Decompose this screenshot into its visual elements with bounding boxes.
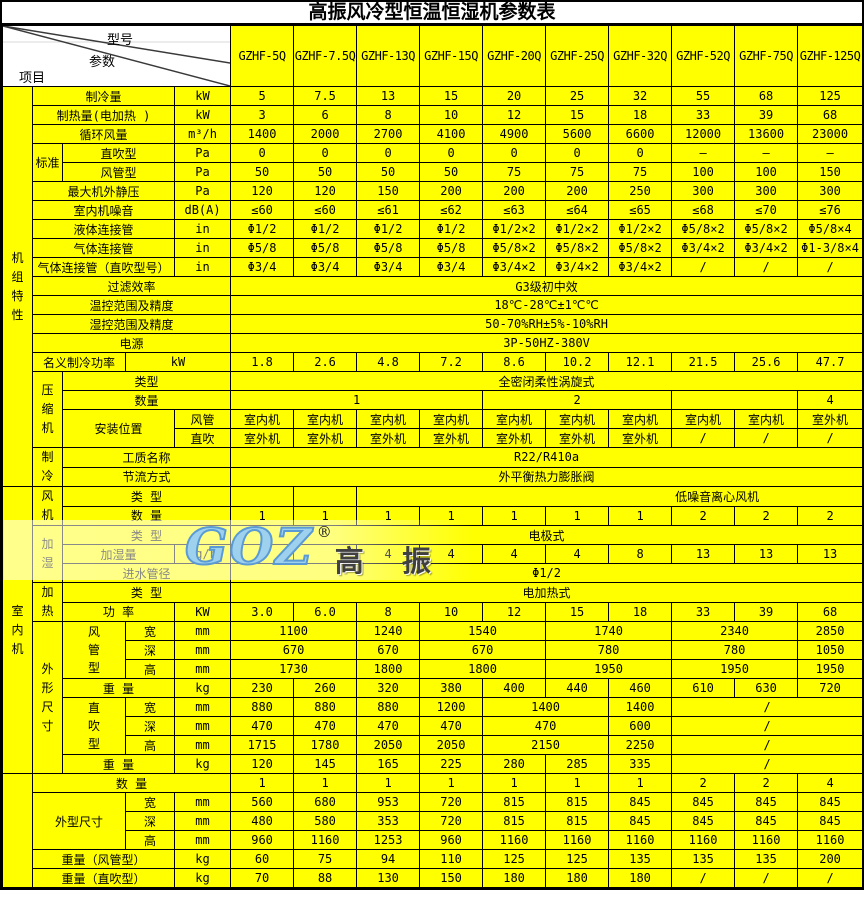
table-row: 气体连接管（直吹型号）inΦ3/4Φ3/4Φ3/4Φ3/4Φ3/4×2Φ3/4×… (3, 258, 863, 277)
unit-label: mm (175, 622, 231, 641)
value-cell: 8.6 (483, 353, 546, 372)
table-row: 加湿量kg/h344448131313 (3, 545, 863, 564)
value-cell: Φ3/4 (231, 258, 294, 277)
value-cell: 13600 (735, 125, 798, 144)
row-label: 温控范围及精度 (33, 296, 231, 315)
value-cell: ≤62 (420, 201, 483, 220)
value-cell: 外平衡热力膨胀阀 (231, 467, 863, 487)
value-cell: 低噪音离心风机 (357, 487, 863, 507)
value-cell: 25 (546, 87, 609, 106)
value-cell: 1 (483, 774, 546, 793)
unit-label: mm (175, 736, 231, 755)
value-cell: 75 (609, 163, 672, 182)
row-label: 直吹型 (63, 698, 126, 755)
value-cell: Φ5/8×2 (672, 220, 735, 239)
value-cell: 880 (357, 698, 420, 717)
value-cell: 2.6 (294, 353, 357, 372)
value-cell: 1780 (294, 736, 357, 755)
value-cell: – (672, 144, 735, 163)
table-row: 压缩机类型全密闭柔性涡旋式 (3, 372, 863, 391)
model-header: GZHF-20Q (483, 26, 546, 87)
spec-sheet: 高振风冷型恒温恒湿机参数表 型号 参数 项目 GZHF-5Q (0, 0, 864, 890)
section-label-indoor-unit: 室内机 (3, 487, 33, 774)
value-cell: / (798, 429, 863, 448)
model-header: GZHF-15Q (420, 26, 483, 87)
table-row: 数量124 (3, 391, 863, 410)
value-cell: 4.8 (357, 353, 420, 372)
value-cell: 845 (735, 812, 798, 831)
value-cell: 6.0 (294, 602, 357, 622)
value-cell: 10 (420, 602, 483, 622)
table-row: 高mm9601160125396011601160116011601160116… (3, 831, 863, 850)
value-cell: 353 (357, 812, 420, 831)
value-cell: 4 (420, 545, 483, 564)
row-label: 过滤效率 (33, 277, 231, 296)
value-cell: 室内机 (735, 410, 798, 429)
value-cell: Φ1/2 (357, 220, 420, 239)
value-cell: 230 (231, 679, 294, 698)
value-cell: 55 (672, 87, 735, 106)
value-cell: 180 (546, 869, 609, 888)
unit-label: dB(A) (175, 201, 231, 220)
value-cell: 3P-50HZ-380V (231, 334, 863, 353)
value-cell: 225 (420, 755, 483, 774)
value-cell: 720 (798, 679, 863, 698)
value-cell: 200 (420, 182, 483, 201)
unit-label: kg (175, 850, 231, 869)
unit-label: mm (175, 660, 231, 679)
row-label: 高 (126, 831, 175, 850)
value-cell: 100 (735, 163, 798, 182)
value-cell: 150 (357, 182, 420, 201)
value-cell: 100 (672, 163, 735, 182)
value-cell: 135 (609, 850, 672, 869)
value-cell: 300 (672, 182, 735, 201)
value-cell: 670 (420, 641, 546, 660)
value-cell: Φ1/2×2 (609, 220, 672, 239)
unit-label: mm (175, 717, 231, 736)
value-cell: 670 (357, 641, 420, 660)
value-cell: 880 (294, 698, 357, 717)
value-cell: 50 (357, 163, 420, 182)
row-label: 室内机噪音 (33, 201, 175, 220)
unit-label: 风管 (175, 410, 231, 429)
value-cell: 4 (357, 545, 420, 564)
row-label: 气体连接管 (33, 239, 175, 258)
value-cell: / (672, 717, 863, 736)
value-cell: 室外机 (483, 429, 546, 448)
value-cell: 7.2 (420, 353, 483, 372)
unit-label: mm (175, 793, 231, 812)
value-cell: Φ3/4×2 (672, 239, 735, 258)
value-cell: 280 (483, 755, 546, 774)
value-cell: 50 (294, 163, 357, 182)
value-cell: 1200 (420, 698, 483, 717)
value-cell: 1.8 (231, 353, 294, 372)
value-cell: 815 (483, 793, 546, 812)
row-label: 直吹型 (63, 144, 175, 163)
value-cell: 88 (294, 869, 357, 888)
value-cell: 1400 (609, 698, 672, 717)
row-label: 类 型 (63, 526, 231, 545)
value-cell: Φ3/4×2 (483, 258, 546, 277)
row-label: 深 (126, 717, 175, 736)
value-cell: 7.5 (294, 87, 357, 106)
table-row: 功 率KW3.06.0810121518333968 (3, 602, 863, 622)
value-cell: 1950 (546, 660, 672, 679)
value-cell: 50 (420, 163, 483, 182)
value-cell: 47.7 (798, 353, 863, 372)
unit-label: kg (175, 755, 231, 774)
unit-label: kW (175, 106, 231, 125)
value-cell: 120 (294, 182, 357, 201)
value-cell: 135 (672, 850, 735, 869)
value-cell: 150 (798, 163, 863, 182)
value-cell: 110 (420, 850, 483, 869)
value-cell: 室内机 (483, 410, 546, 429)
value-cell: 1950 (672, 660, 798, 679)
unit-label: in (175, 239, 231, 258)
unit-label: mm (175, 831, 231, 850)
value-cell: 电加热式 (231, 583, 863, 603)
value-cell: 1160 (735, 831, 798, 850)
unit-label: kW (126, 353, 231, 372)
value-cell: 室内机 (231, 410, 294, 429)
value-cell: 18 (609, 106, 672, 125)
value-cell: 845 (798, 812, 863, 831)
value-cell: 室内机 (672, 410, 735, 429)
value-cell: 32 (609, 87, 672, 106)
value-cell: 室内机 (609, 410, 672, 429)
value-cell: 室外机 (231, 429, 294, 448)
value-cell: 15 (546, 106, 609, 125)
unit-label: kg/h (175, 545, 231, 564)
value-cell: Φ5/8 (357, 239, 420, 258)
value-cell: 2050 (357, 736, 420, 755)
value-cell: / (672, 429, 735, 448)
value-cell: 1 (357, 506, 420, 526)
row-label: 湿控范围及精度 (33, 315, 231, 334)
value-cell: 23000 (798, 125, 863, 144)
table-row: 外型尺寸宽mm560680953720815815845845845845 (3, 793, 863, 812)
value-cell: 13 (798, 545, 863, 564)
row-label: 标准 (33, 144, 63, 182)
value-cell (294, 487, 357, 507)
value-cell: 880 (231, 698, 294, 717)
value-cell: 33 (672, 106, 735, 125)
value-cell: 1730 (231, 660, 357, 679)
value-cell: ≤68 (672, 201, 735, 220)
value-cell: / (735, 869, 798, 888)
table-row: 制冷工质名称R22/R410a (3, 448, 863, 468)
table-row: 电源3P-50HZ-380V (3, 334, 863, 353)
row-label: 类 型 (63, 487, 231, 507)
section-label-heating: 加热 (33, 583, 63, 622)
value-cell: 21.5 (672, 353, 735, 372)
table-row: 气体连接管inΦ5/8Φ5/8Φ5/8Φ5/8Φ5/8×2Φ5/8×2Φ5/8×… (3, 239, 863, 258)
value-cell: 12.1 (609, 353, 672, 372)
row-label: 宽 (126, 698, 175, 717)
value-cell: 200 (483, 182, 546, 201)
value-cell: 845 (798, 793, 863, 812)
value-cell: ≤65 (609, 201, 672, 220)
row-label: 类 型 (63, 583, 231, 603)
value-cell: Φ5/8 (420, 239, 483, 258)
value-cell: 70 (231, 869, 294, 888)
value-cell: 13 (357, 87, 420, 106)
value-cell: / (735, 258, 798, 277)
table-row: 重量（直吹型）kg7088130150180180180/// (3, 869, 863, 888)
value-cell: 5 (231, 87, 294, 106)
section-label-outdoor-blank (3, 774, 33, 888)
value-cell: 12000 (672, 125, 735, 144)
value-cell: 5600 (546, 125, 609, 144)
value-cell: Φ1-3/8×4 (798, 239, 863, 258)
value-cell: 3 (231, 545, 294, 564)
table-row: 风管型Pa50505050757575100100150 (3, 163, 863, 182)
value-cell: 815 (546, 812, 609, 831)
value-cell: 285 (546, 755, 609, 774)
value-cell: 1100 (231, 622, 357, 641)
table-row: 高mm173018001800195019501950 (3, 660, 863, 679)
value-cell: 1 (609, 506, 672, 526)
value-cell: 75 (483, 163, 546, 182)
value-cell: 25.6 (735, 353, 798, 372)
value-cell: 1050 (798, 641, 863, 660)
value-cell: Φ3/4 (357, 258, 420, 277)
value-cell: ≤60 (294, 201, 357, 220)
value-cell: R22/R410a (231, 448, 863, 468)
row-label: 高 (126, 736, 175, 755)
value-cell: 460 (609, 679, 672, 698)
row-label: 重量（风管型） (33, 850, 175, 869)
value-cell: 125 (483, 850, 546, 869)
value-cell: 470 (420, 717, 483, 736)
table-row: 湿控范围及精度50-70%RH±5%-10%RH (3, 315, 863, 334)
value-cell: 150 (420, 869, 483, 888)
row-label: 数 量 (33, 774, 231, 793)
value-cell: 全密闭柔性涡旋式 (231, 372, 863, 391)
value-cell: Φ3/4×2 (546, 258, 609, 277)
value-cell: Φ3/4 (294, 258, 357, 277)
value-cell: 10.2 (546, 353, 609, 372)
row-label: 名义制冷功率 (33, 353, 126, 372)
value-cell: 室内机 (546, 410, 609, 429)
value-cell: 120 (231, 755, 294, 774)
value-cell: 13 (735, 545, 798, 564)
value-cell: 2050 (420, 736, 483, 755)
table-row: 节流方式外平衡热力膨胀阀 (3, 467, 863, 487)
value-cell: 1240 (357, 622, 420, 641)
value-cell: 1160 (672, 831, 735, 850)
value-cell: 50-70%RH±5%-10%RH (231, 315, 863, 334)
value-cell: 1 (546, 774, 609, 793)
value-cell: Φ5/8×4 (798, 220, 863, 239)
value-cell: 1540 (420, 622, 546, 641)
value-cell: 68 (798, 106, 863, 125)
table-row: 名义制冷功率kW1.82.64.87.28.610.212.121.525.64… (3, 353, 863, 372)
value-cell: 260 (294, 679, 357, 698)
row-label: 功 率 (63, 602, 175, 622)
section-label-compressor: 压缩机 (33, 372, 63, 448)
value-cell: 845 (672, 793, 735, 812)
value-cell: 室外机 (546, 429, 609, 448)
table-row: 进水管径Φ1/2 (3, 564, 863, 583)
value-cell: 960 (420, 831, 483, 850)
row-label: 工质名称 (63, 448, 231, 468)
row-label: 进水管径 (63, 564, 231, 583)
value-cell: Φ5/8×2 (609, 239, 672, 258)
value-cell: 2000 (294, 125, 357, 144)
row-label: 电源 (33, 334, 231, 353)
table-row: 标准直吹型Pa0000000––– (3, 144, 863, 163)
value-cell: 400 (483, 679, 546, 698)
table-row: 直吹型宽mm880880880120014001400/ (3, 698, 863, 717)
value-cell: 2850 (798, 622, 863, 641)
row-label: 制冷量 (33, 87, 175, 106)
value-cell: 1 (294, 506, 357, 526)
unit-label: in (175, 220, 231, 239)
value-cell: 200 (546, 182, 609, 201)
value-cell: 1160 (798, 831, 863, 850)
table-row: 室内机风机类 型低噪音离心风机 (3, 487, 863, 507)
corner-label-param: 参数 (89, 51, 115, 70)
value-cell: Φ5/8 (294, 239, 357, 258)
table-row: 机组特性制冷量kW57.513152025325568125 (3, 87, 863, 106)
value-cell: 600 (609, 717, 672, 736)
value-cell: 18℃-28℃±1℃℃ (231, 296, 863, 315)
value-cell: – (798, 144, 863, 163)
value-cell: 15 (546, 602, 609, 622)
row-label: 气体连接管（直吹型号） (33, 258, 175, 277)
value-cell: 1 (294, 774, 357, 793)
value-cell: 15 (420, 87, 483, 106)
table-row: 重量（风管型）kg607594110125125135135135200 (3, 850, 863, 869)
value-cell: 4 (546, 545, 609, 564)
value-cell: 1800 (357, 660, 420, 679)
row-label: 节流方式 (63, 467, 231, 487)
value-cell: 2 (672, 774, 735, 793)
unit-label: KW (175, 602, 231, 622)
value-cell: 720 (420, 793, 483, 812)
value-cell: 630 (735, 679, 798, 698)
value-cell: Φ3/4 (420, 258, 483, 277)
model-header: GZHF-7.5Q (294, 26, 357, 87)
value-cell: 1740 (546, 622, 672, 641)
row-label: 风管型 (63, 622, 126, 679)
value-cell: 1 (483, 506, 546, 526)
table-row: 加湿类 型电极式 (3, 526, 863, 545)
value-cell: / (798, 258, 863, 277)
unit-label: mm (175, 698, 231, 717)
value-cell: 4900 (483, 125, 546, 144)
value-cell: 1 (231, 391, 483, 410)
value-cell: 845 (672, 812, 735, 831)
value-cell: Φ1/2 (420, 220, 483, 239)
value-cell: 室外机 (609, 429, 672, 448)
value-cell: 0 (609, 144, 672, 163)
section-label-humidification: 加湿 (33, 526, 63, 583)
row-label: 最大机外静压 (33, 182, 175, 201)
table-row: 深mm470470470470470600/ (3, 717, 863, 736)
value-cell: 125 (546, 850, 609, 869)
table-row: 高mm171517802050205021502250/ (3, 736, 863, 755)
value-cell: 1 (609, 774, 672, 793)
table-row: 重 量kg120145165225280285335/ (3, 755, 863, 774)
spec-table: 型号 参数 项目 GZHF-5Q GZHF-7.5Q GZHF-13Q GZHF… (2, 25, 863, 888)
value-cell: 2250 (609, 736, 672, 755)
value-cell: / (672, 736, 863, 755)
value-cell: 0 (231, 144, 294, 163)
value-cell: 560 (231, 793, 294, 812)
table-row: 制热量(电加热 )kW36810121518333968 (3, 106, 863, 125)
value-cell: Φ1/2 (231, 220, 294, 239)
value-cell: 3 (231, 106, 294, 125)
value-cell: 1 (420, 774, 483, 793)
value-cell: ≤70 (735, 201, 798, 220)
table-row: 数 量1111111224 (3, 774, 863, 793)
value-cell: 2 (735, 506, 798, 526)
value-cell: 440 (546, 679, 609, 698)
value-cell: 1 (231, 774, 294, 793)
value-cell: Φ1/2 (294, 220, 357, 239)
value-cell: Φ5/8 (231, 239, 294, 258)
value-cell: 815 (546, 793, 609, 812)
value-cell: 室外机 (420, 429, 483, 448)
value-cell: 1160 (609, 831, 672, 850)
value-cell: 12 (483, 106, 546, 125)
value-cell: 670 (231, 641, 357, 660)
value-cell: 720 (420, 812, 483, 831)
value-cell: 50 (231, 163, 294, 182)
value-cell: 580 (294, 812, 357, 831)
value-cell: 0 (420, 144, 483, 163)
value-cell: ≤61 (357, 201, 420, 220)
table-row: 外形尺寸风管型宽mm110012401540174023402850 (3, 622, 863, 641)
value-cell: 10 (420, 106, 483, 125)
table-row: 循环风量m³/h14002000270041004900560066001200… (3, 125, 863, 144)
value-cell: 1400 (483, 698, 609, 717)
value-cell: 68 (735, 87, 798, 106)
page-title: 高振风冷型恒温恒湿机参数表 (2, 2, 862, 25)
value-cell: 18 (609, 602, 672, 622)
unit-label: Pa (175, 144, 231, 163)
value-cell: 电极式 (231, 526, 863, 545)
value-cell: 室内机 (420, 410, 483, 429)
value-cell: 470 (294, 717, 357, 736)
value-cell: 1160 (294, 831, 357, 850)
row-label: 深 (126, 812, 175, 831)
value-cell: 2 (483, 391, 672, 410)
section-label-refrigeration: 制冷 (33, 448, 63, 487)
row-label: 重 量 (63, 679, 175, 698)
value-cell: 8 (357, 106, 420, 125)
row-label: 宽 (126, 793, 175, 812)
value-cell: 室内机 (357, 410, 420, 429)
value-cell: 780 (672, 641, 798, 660)
value-cell: 120 (231, 182, 294, 201)
value-cell: 1950 (798, 660, 863, 679)
value-cell: 0 (546, 144, 609, 163)
value-cell: Φ1/2 (231, 564, 863, 583)
value-cell: 610 (672, 679, 735, 698)
value-cell: 8 (609, 545, 672, 564)
value-cell: 13 (672, 545, 735, 564)
value-cell: 845 (609, 793, 672, 812)
value-cell: / (672, 869, 735, 888)
value-cell: 1160 (546, 831, 609, 850)
value-cell: Φ3/4×2 (609, 258, 672, 277)
